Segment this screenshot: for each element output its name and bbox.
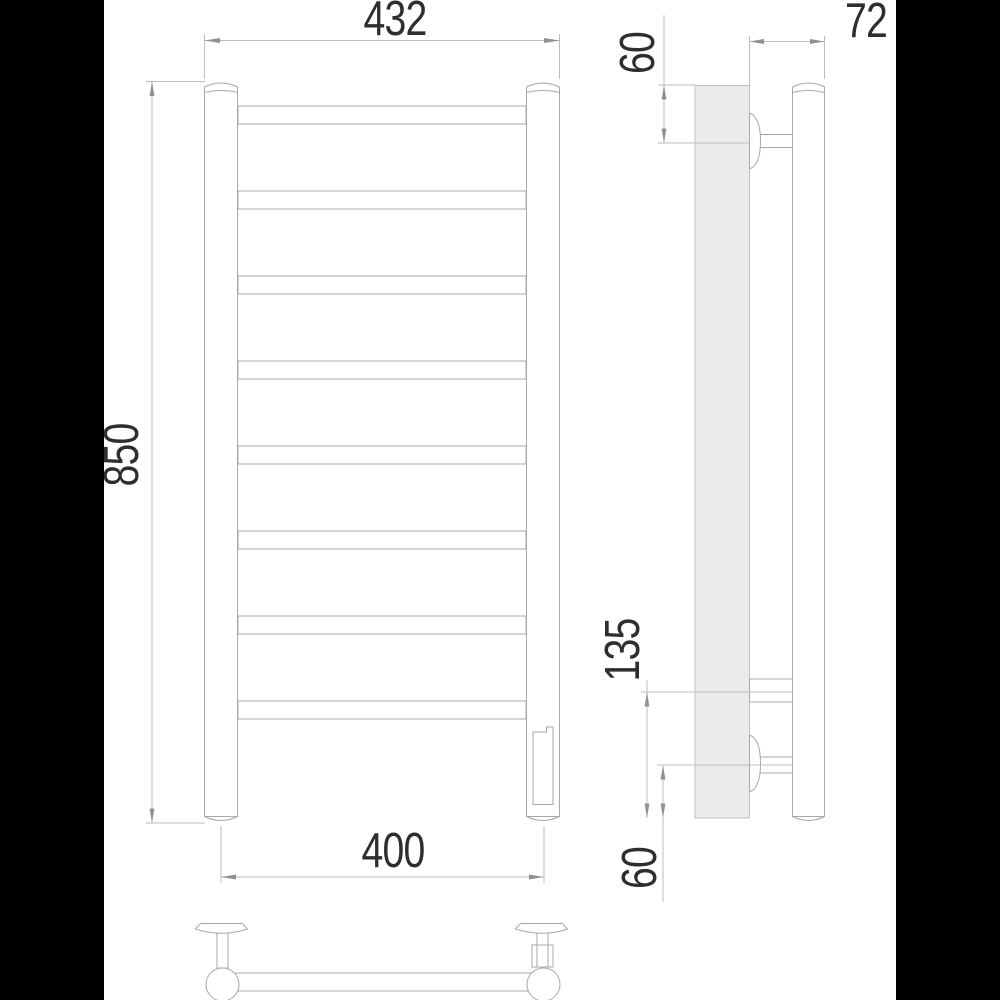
heater-box xyxy=(533,727,553,805)
arrowhead-bottom xyxy=(150,809,155,824)
rung-6 xyxy=(238,531,526,549)
front-view xyxy=(205,83,560,821)
arrowhead-bottom xyxy=(645,804,650,819)
rung-4 xyxy=(238,361,526,379)
arrowhead-top xyxy=(150,82,155,97)
side-view xyxy=(695,83,825,821)
top-right-bracket-stem xyxy=(537,928,548,967)
front-right-post xyxy=(527,83,560,821)
rung-7 xyxy=(238,616,526,634)
arrowhead-right xyxy=(529,875,544,880)
upper-bracket-flange xyxy=(750,113,761,169)
upper-bracket-arm xyxy=(758,135,793,148)
dim-label-overall-width: 432 xyxy=(347,0,443,49)
arrowhead-top xyxy=(661,765,666,780)
top-rung-tube xyxy=(222,973,543,991)
dim-label-axis-width: 400 xyxy=(345,821,441,881)
rung-2 xyxy=(238,191,526,209)
top-view xyxy=(196,924,568,1000)
bottom-rung-stub xyxy=(750,679,793,702)
left-black-bar xyxy=(0,0,104,1000)
rung-1 xyxy=(238,106,526,124)
arrowhead-left xyxy=(205,38,221,43)
dim-72 xyxy=(750,36,825,85)
rung-5 xyxy=(238,446,526,464)
rung-8 xyxy=(238,701,526,719)
arrowhead-right xyxy=(544,38,560,43)
dim-label-top-offset: 60 xyxy=(608,5,668,101)
top-right-bracket-flange xyxy=(516,924,568,934)
lower-bracket-flange xyxy=(750,735,761,792)
rung-3 xyxy=(238,276,526,294)
top-left-bracket-stem xyxy=(217,928,228,968)
front-left-post xyxy=(205,83,238,821)
dim-label-bottom-section: 135 xyxy=(593,602,653,698)
arrowhead-bottom xyxy=(661,804,666,819)
side-post-tube xyxy=(793,83,825,821)
arrowhead-left xyxy=(750,39,765,44)
top-left-post-section xyxy=(206,968,239,1000)
arrowhead-left xyxy=(221,875,236,880)
top-left-bracket-flange xyxy=(196,924,248,934)
arrowhead-bottom xyxy=(662,129,667,144)
dim-label-bottom-offset: 60 xyxy=(610,820,670,916)
top-right-post-section xyxy=(527,968,560,1000)
dim-850 xyxy=(146,82,205,824)
wall-section xyxy=(695,86,750,819)
drawing-page: 432 850 400 72 60 135 60 xyxy=(0,0,1000,1000)
right-black-bar xyxy=(896,0,1000,1000)
